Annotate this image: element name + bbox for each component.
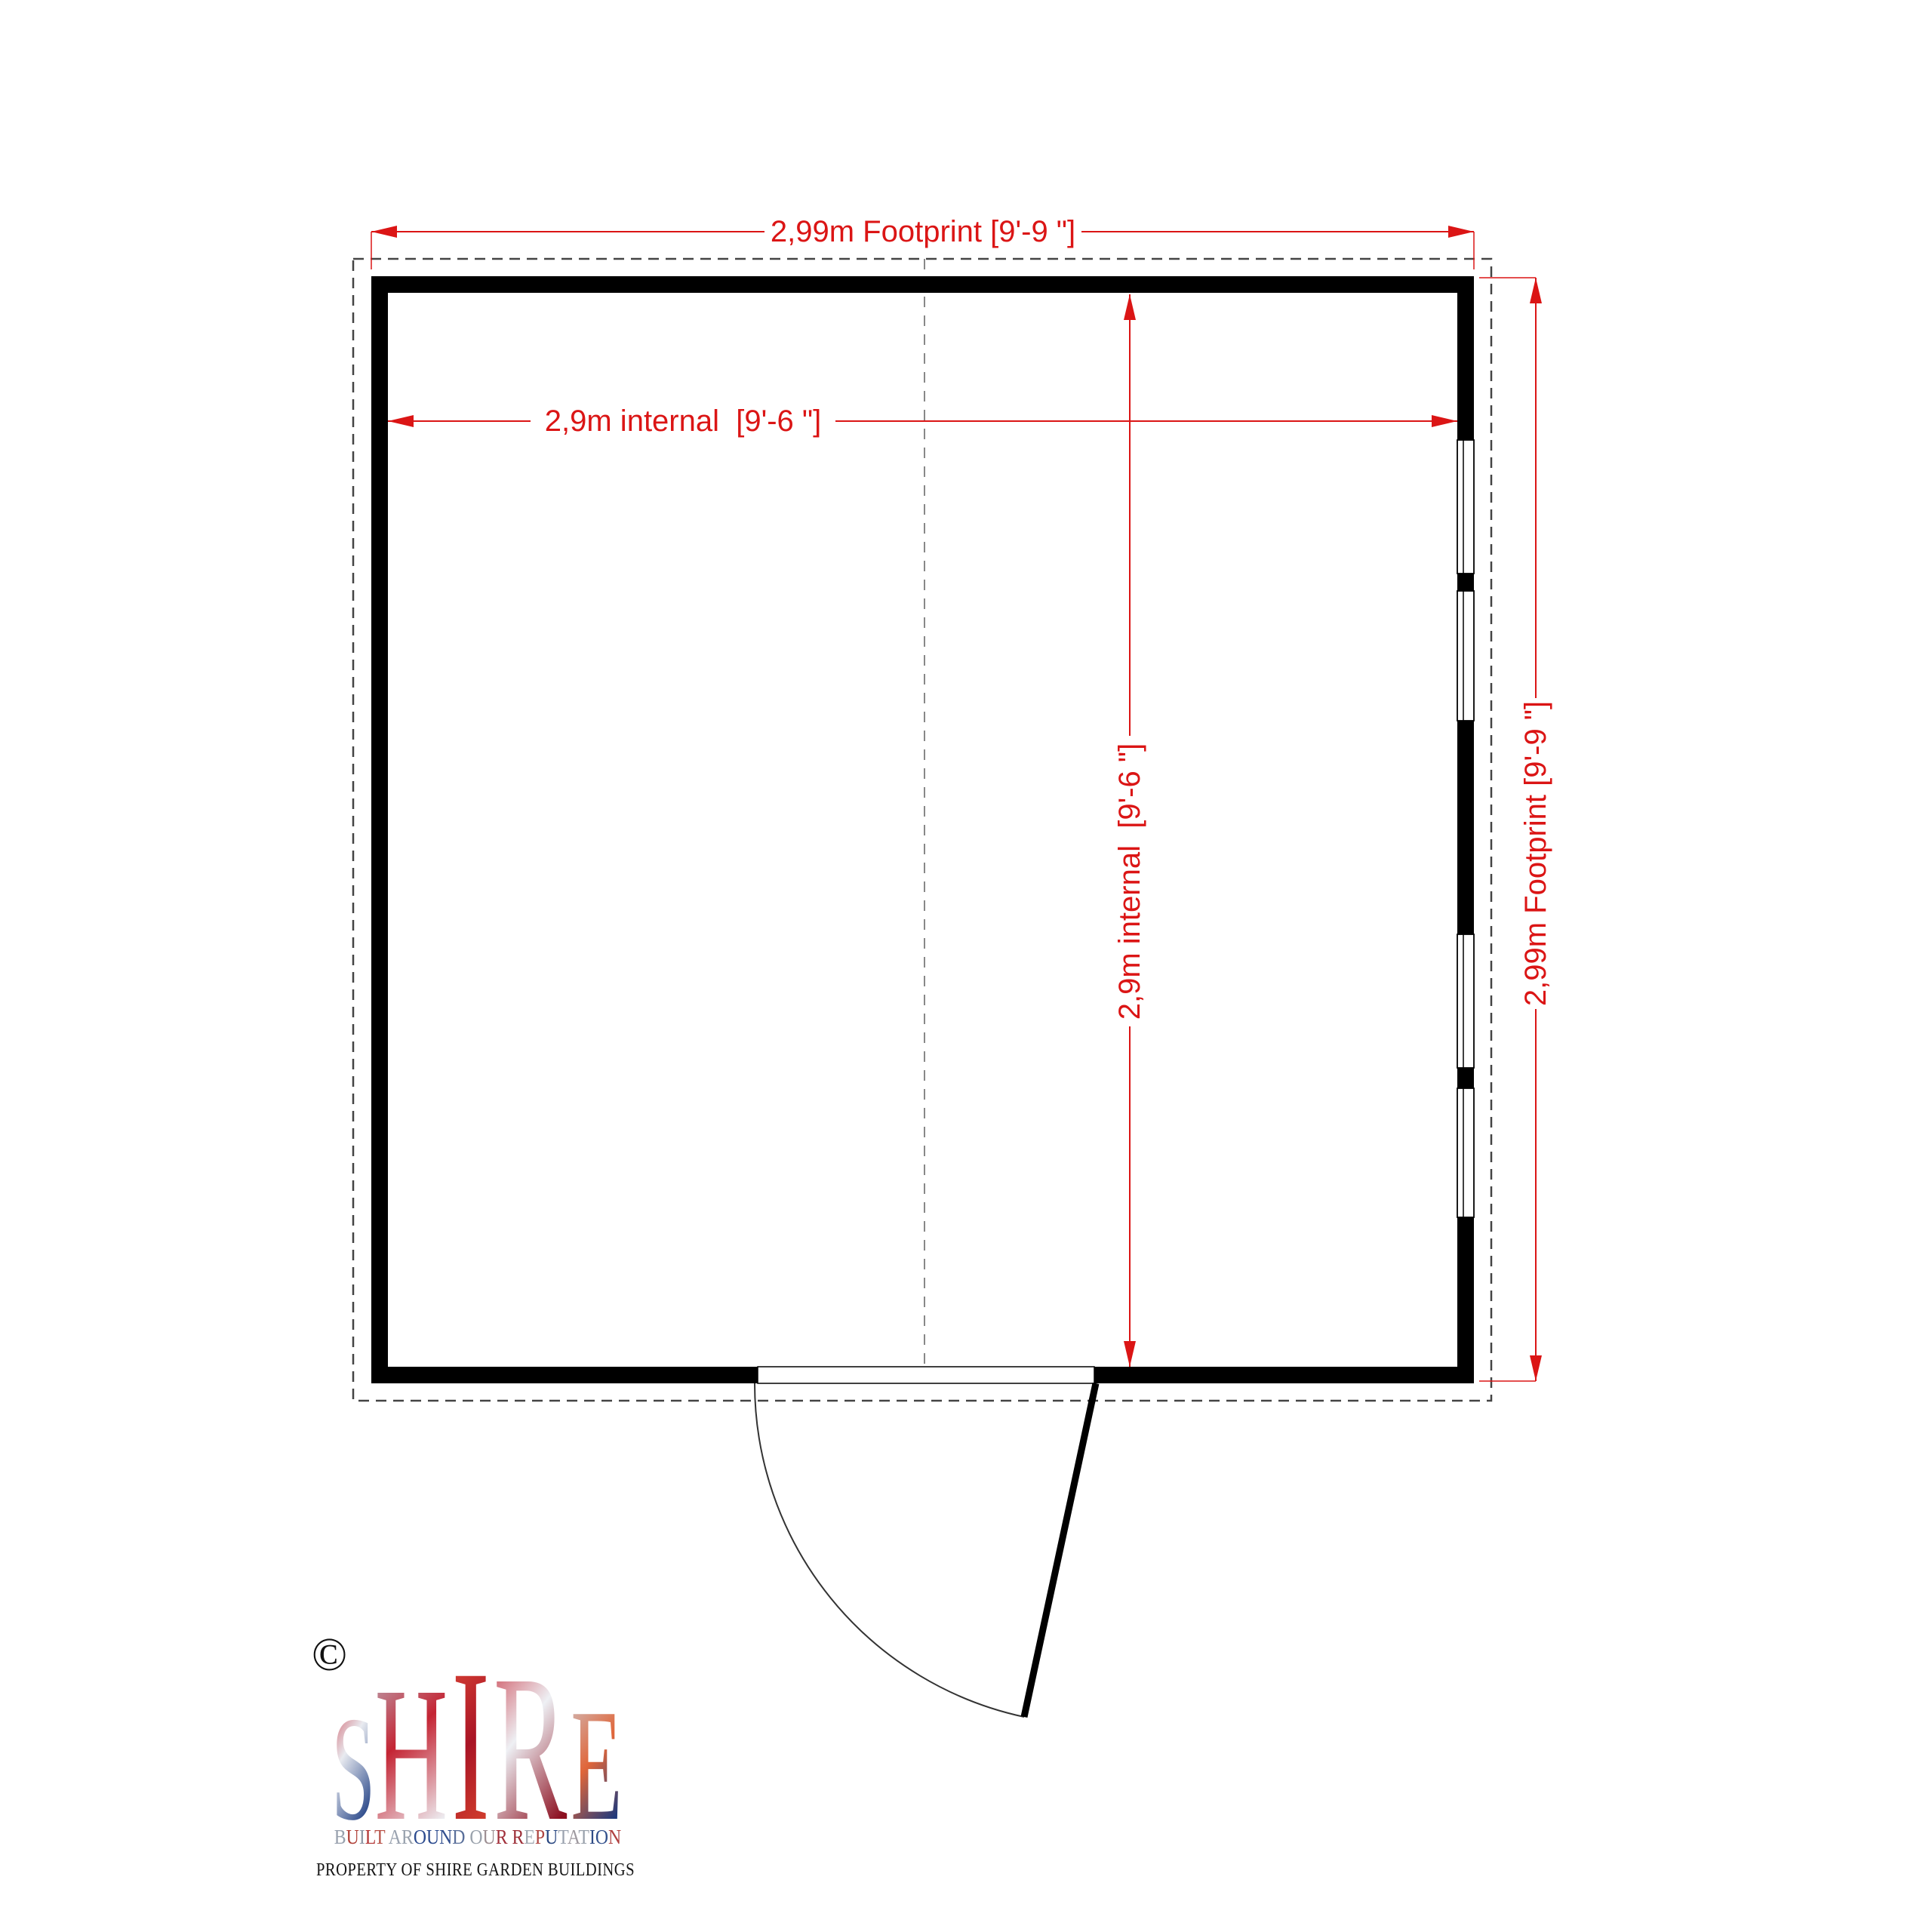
door-leaf [1024,1383,1096,1717]
tagline-letter: E [524,1826,535,1848]
wall-left [371,276,388,1383]
wall-right-lower [1457,1217,1474,1383]
arrow-width-left [388,415,414,427]
tagline-letter: N [439,1826,452,1848]
window-1-sash-2 [1457,591,1474,721]
tagline-letter: R [401,1826,414,1848]
door-threshold [758,1367,1094,1383]
wall-right-middle [1457,721,1474,934]
tagline-letter: O [469,1826,482,1848]
right-footprint-dimension-label: 2,99m Footprint [9'-9 "] [1519,701,1552,1006]
arrow-width-right [1432,415,1457,427]
wall-right-upper [1457,276,1474,440]
logo-tagline-letters: BUILT AROUND OUR REPUTATION [334,1826,621,1849]
window-1-sash-1 [1457,440,1474,574]
wall-top [371,276,1474,293]
tagline-letter: U [483,1826,496,1848]
arrow-depth-bottom [1124,1341,1136,1367]
tagline-letter: I [359,1826,365,1848]
window-2-sash-2 [1457,1088,1474,1217]
tagline-letter: A [568,1826,579,1848]
tagline-letter: N [608,1826,621,1848]
internal-depth-dimension-label: 2,9m internal [9'-6 "] [1113,743,1146,1020]
logo-property-line: PROPERTY OF SHIRE GARDEN BUILDINGS [316,1860,635,1881]
arrow-top-right [1448,226,1474,238]
door-swing-arc [755,1383,1024,1717]
dimension-arrows [371,226,1542,1381]
arrow-top-left [371,226,397,238]
floor-plan-svg: 2,99m Footprint [9'-9 "] 2,9m internal [… [0,0,1932,1932]
tagline-letter: R [496,1826,508,1848]
tagline-letter: B [334,1826,346,1848]
tagline-letter: D [452,1826,465,1848]
wall-right-mullion-1 [1457,574,1474,591]
arrow-depth-top [1124,294,1136,320]
wall-bottom-right [1094,1367,1474,1383]
tagline-letter: T [374,1826,385,1848]
top-footprint-dimension-label: 2,99m Footprint [9'-9 "] [771,215,1075,248]
copyright-symbol: © [312,1632,347,1678]
tagline-letter: U [545,1826,558,1848]
internal-width-dimension-label: 2,9m internal [9'-6 "] [545,405,821,438]
wall-bottom-left [371,1367,758,1383]
wall-right-mullion-2 [1457,1068,1474,1088]
tagline-letter: P [535,1826,545,1848]
tagline-letter: U [426,1826,439,1848]
walls [371,276,1474,1383]
tagline-letter: U [346,1826,359,1848]
tagline-letter: T [558,1826,568,1848]
arrow-right-top [1530,278,1542,303]
footprint-dashed-outline [353,259,1491,1401]
window-2-sash-1 [1457,934,1474,1068]
tagline-letter: O [595,1826,608,1848]
tagline-letter: A [389,1826,401,1848]
tagline-letter: O [414,1826,426,1848]
tagline-letter: R [512,1826,525,1848]
tagline-letter: T [578,1826,589,1848]
dimension-label-masks [531,215,1556,1026]
tagline-letter: L [365,1826,374,1848]
floor-plan-sheet: 2,99m Footprint [9'-9 "] 2,9m internal [… [0,0,1932,1932]
arrow-right-bottom [1530,1355,1542,1381]
